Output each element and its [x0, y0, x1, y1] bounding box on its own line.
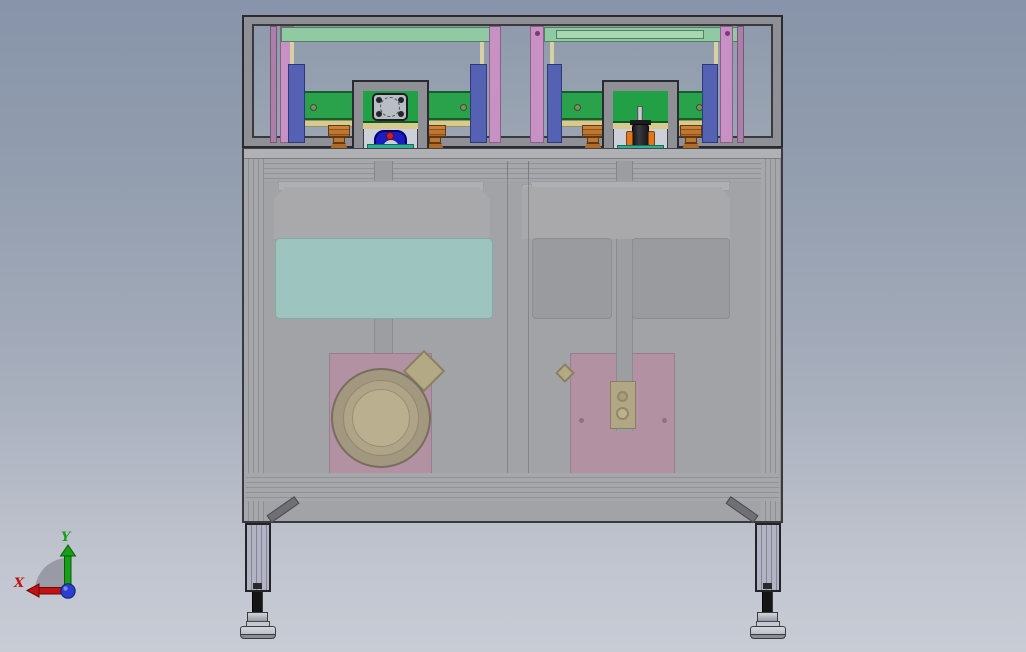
- leg-lock-detail: [253, 583, 262, 589]
- blue-guide-column: [288, 64, 305, 143]
- hanger-rod-left-a: [290, 42, 294, 66]
- foot-base-right: [750, 634, 786, 639]
- axis-label-y: Y: [61, 530, 72, 545]
- cabinet-bottom-rail: [246, 473, 779, 501]
- x-axis-arrowhead: [27, 584, 39, 597]
- y-axis-arrowhead: [61, 545, 76, 556]
- clamp-stem: [685, 137, 697, 143]
- clamp-bracket: [328, 125, 350, 150]
- top-rail-green-left: [281, 27, 490, 42]
- yellow-rail-strip: [363, 123, 418, 129]
- pink-post-narrow-right: [737, 26, 744, 143]
- clamp-bracket: [680, 125, 702, 150]
- motor-mount-tab: [648, 131, 655, 146]
- pink-post-narrow-left: [270, 26, 277, 143]
- hanger-rod-right-b: [714, 42, 718, 66]
- clamp-head: [680, 125, 702, 137]
- screw-dot: [725, 31, 730, 36]
- leg-right: [755, 523, 781, 592]
- z-origin-highlight: [63, 586, 67, 590]
- hanger-rod-right-a: [550, 42, 554, 66]
- cabinet-side-post-right: [761, 159, 781, 521]
- motor-flange-plate: [372, 93, 408, 121]
- clamp-stem: [333, 137, 345, 143]
- conveyor-hole: [310, 104, 317, 111]
- motor-shaft: [637, 106, 643, 121]
- leg-lock-detail: [763, 583, 772, 589]
- pink-post-right: [720, 26, 733, 143]
- top-rail-inner-panel: [556, 30, 704, 39]
- pink-post-divider-left: [489, 26, 501, 143]
- machine-cabinet: [242, 148, 783, 523]
- cabinet-side-post-left: [244, 159, 264, 521]
- drive-housing-right: [602, 80, 679, 150]
- cabinet-top-cap: [244, 149, 781, 159]
- foot-base-left: [240, 634, 276, 639]
- conveyor-hole: [460, 104, 467, 111]
- screw-dot: [535, 31, 540, 36]
- axis-label-x: X: [13, 576, 25, 591]
- cad-viewport[interactable]: Y X: [0, 0, 1026, 652]
- pink-post-divider-right: [530, 26, 544, 143]
- clamp-stem: [587, 137, 599, 143]
- bolt-hole: [398, 111, 404, 117]
- machine-top-frame: [242, 15, 783, 148]
- blue-guide-column: [547, 64, 562, 143]
- blue-guide-column: [470, 64, 487, 143]
- top-rail-green-right: [544, 27, 740, 42]
- conveyor-hole: [574, 104, 581, 111]
- clamp-head: [582, 125, 604, 137]
- shaft-bore-circle: [380, 97, 400, 117]
- shaft-indicator-dot: [386, 132, 394, 140]
- clamp-bracket: [582, 125, 604, 150]
- leg-left: [245, 523, 271, 592]
- motor-mount-tab: [626, 131, 633, 146]
- axis-triad: Y X: [8, 524, 88, 608]
- clamp-stem: [429, 137, 441, 143]
- hanger-rod-left-b: [480, 42, 484, 66]
- front-panel-glass: [264, 179, 765, 481]
- blue-guide-column: [702, 64, 718, 143]
- clamp-head: [328, 125, 350, 137]
- drive-housing-left: [352, 80, 429, 150]
- z-origin-sphere: [61, 584, 75, 598]
